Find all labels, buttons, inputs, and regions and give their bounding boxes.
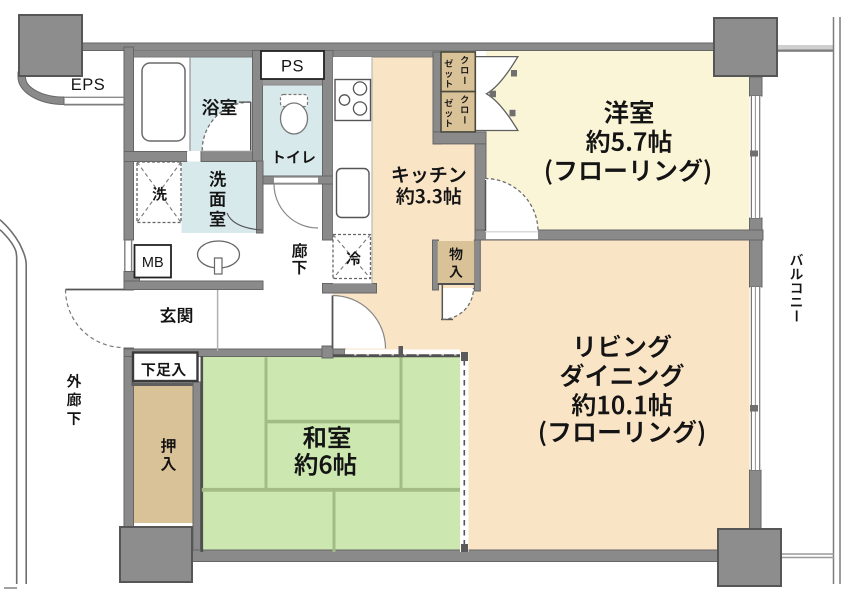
svg-text:MB: MB (142, 255, 164, 271)
svg-text:EPS: EPS (71, 76, 106, 94)
svg-text:PS: PS (281, 58, 304, 76)
